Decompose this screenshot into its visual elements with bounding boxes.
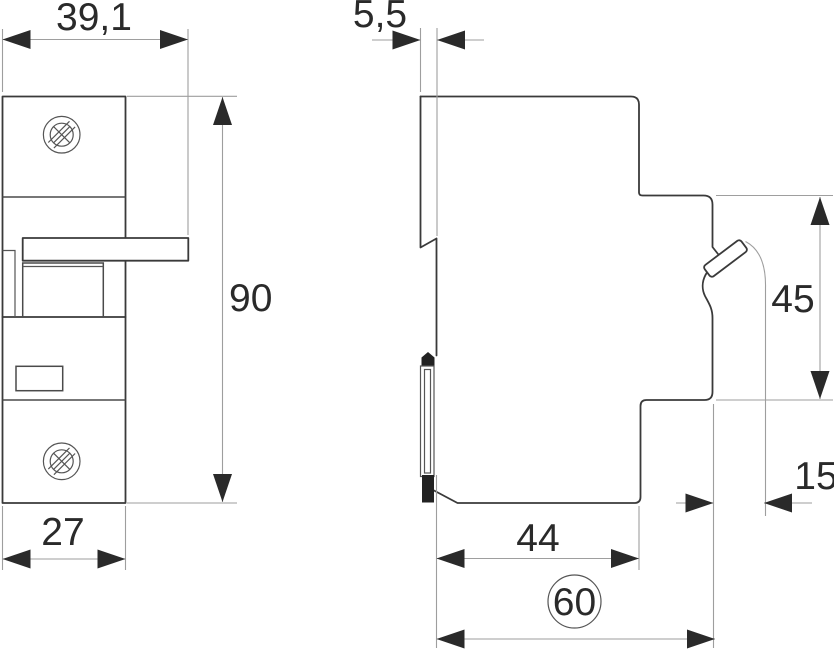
dim-body-depth: 44	[437, 475, 640, 648]
front-body-outline	[3, 97, 126, 504]
side-outline-upper	[421, 97, 719, 255]
arrowhead-left	[3, 30, 31, 49]
arrowhead-left	[3, 550, 31, 569]
dimensions: 39,1 90 27 5,5	[3, 0, 834, 649]
arrowhead-right	[98, 550, 126, 569]
drawing-svg: 39,1 90 27 5,5	[0, 0, 834, 652]
dim-front-body-width: 27	[3, 506, 126, 570]
dim-label: 5,5	[353, 0, 407, 36]
arrowhead-left	[437, 31, 465, 50]
clip-bottom-foot	[422, 475, 434, 503]
mounting-hook-tab	[703, 239, 748, 278]
dim-height: 90	[127, 96, 272, 503]
clip-spring-channel-inner	[425, 370, 431, 474]
dim-label: 45	[771, 278, 814, 321]
din-rail-clip	[421, 352, 435, 503]
arrowhead-right	[687, 630, 715, 649]
dim-overall-depth: 60	[437, 575, 716, 649]
hook-swing-path	[746, 242, 766, 517]
dim-label: 60	[553, 581, 596, 624]
clip-spring-channel	[421, 366, 435, 477]
side-outline-rear	[421, 97, 437, 356]
side-outline-lower	[434, 261, 725, 504]
arrowhead-up	[811, 197, 830, 225]
arrowhead-right	[686, 494, 714, 513]
dim-label: 15	[794, 455, 834, 498]
arrowhead-right	[611, 549, 639, 568]
toggle-handle	[23, 238, 189, 261]
dim-label: 44	[516, 517, 559, 560]
arrowhead-left	[437, 630, 465, 649]
arrowhead-up	[213, 97, 232, 125]
dim-label: 27	[41, 511, 84, 554]
arrowhead-right	[160, 30, 188, 49]
dimension-drawing: 39,1 90 27 5,5	[0, 0, 834, 652]
dim-rear-protrusion: 5,5	[353, 0, 484, 236]
front-view	[3, 97, 189, 504]
arrowhead-left	[764, 494, 792, 513]
clip-top-catch	[422, 352, 435, 366]
arrowhead-left	[437, 549, 465, 568]
dim-upper-section-height: 45	[716, 196, 833, 401]
arrowhead-down	[811, 371, 830, 399]
arrowhead-down	[213, 474, 232, 502]
dim-label: 90	[229, 277, 272, 320]
dim-label: 39,1	[56, 0, 132, 39]
dim-clip-extension: 15	[676, 404, 834, 648]
